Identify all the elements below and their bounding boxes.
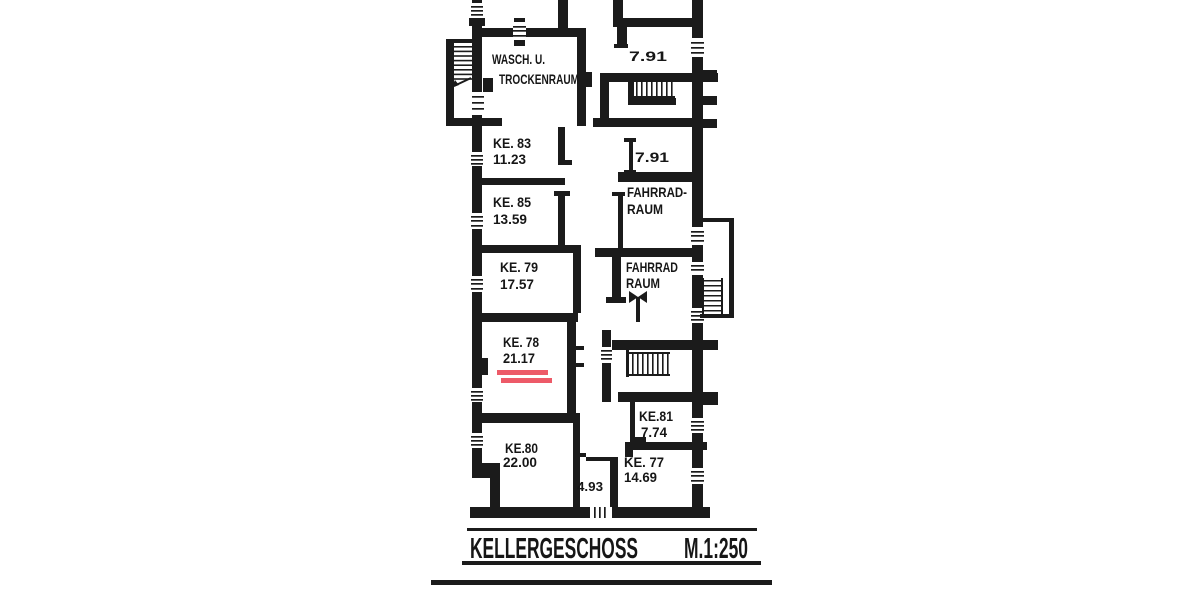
room-label-ke83-area: 11.23 [493, 151, 526, 167]
page-bottom-rule [431, 580, 772, 585]
title-block: KELLERGESCHOSS M.1:250 [431, 528, 772, 585]
highlight-line-1 [497, 370, 548, 375]
floorplan-screenshot: WASCH. U. TROCKENRAUM KE. 83 11.23 KE. 8… [0, 0, 1200, 600]
room-label-fahrrad-upper-line2: RAUM [627, 201, 663, 217]
room-label-ke78-area: 21.17 [503, 350, 535, 366]
room-label-791mid-area: 7.91 [635, 149, 669, 165]
room-label-ke83-name: KE. 83 [493, 135, 531, 151]
room-label-wasch-line2: TROCKENRAUM [499, 71, 579, 87]
room-label-corridor-area: 4.93 [577, 479, 603, 494]
room-labels: WASCH. U. TROCKENRAUM KE. 83 11.23 KE. 8… [492, 48, 687, 494]
room-label-ke78-name: KE. 78 [503, 334, 539, 350]
plan-scale: M.1:250 [684, 533, 748, 565]
room-label-wasch-line1: WASCH. U. [492, 51, 545, 67]
highlight-line-2 [501, 378, 552, 383]
room-label-fahrrad-lower-line1: FAHRRAD [626, 259, 678, 275]
title-rule-bottom [462, 561, 761, 565]
title-rule-top [467, 528, 757, 531]
stair-top-left [451, 44, 473, 88]
room-label-ke77-area: 14.69 [624, 469, 657, 485]
room-label-fahrrad-lower-line2: RAUM [626, 275, 660, 291]
room-label-ke85-name: KE. 85 [493, 194, 531, 210]
highlight-marks [497, 370, 552, 383]
stair-exterior-right [700, 218, 734, 318]
room-label-ke81-name: KE.81 [639, 408, 673, 424]
room-label-791top-area: 7.91 [629, 48, 667, 64]
room-label-ke85-area: 13.59 [493, 211, 527, 227]
stair-mid-right [626, 350, 670, 377]
room-label-ke81-area: 7.74 [641, 424, 667, 440]
room-label-ke77-name: KE. 77 [624, 454, 664, 470]
floorplan-drawing: WASCH. U. TROCKENRAUM KE. 83 11.23 KE. 8… [0, 0, 1200, 600]
plan-title: KELLERGESCHOSS [470, 533, 638, 565]
room-label-fahrrad-upper-line1: FAHRRAD- [627, 184, 687, 200]
room-label-ke79-area: 17.57 [500, 276, 534, 292]
room-label-ke80-area: 22.00 [503, 454, 537, 470]
room-label-ke79-name: KE. 79 [500, 259, 538, 275]
door-marker [629, 291, 647, 322]
